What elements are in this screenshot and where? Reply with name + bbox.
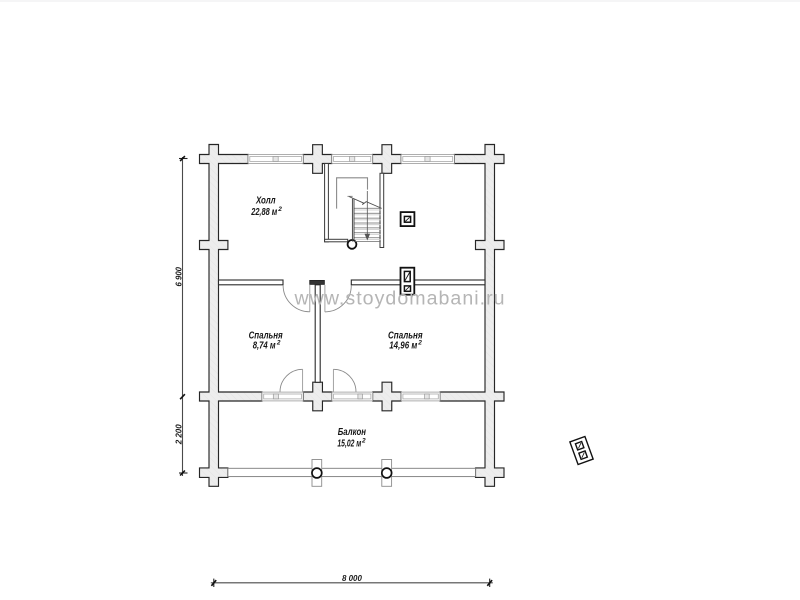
svg-text:Балкон: Балкон [338,427,366,438]
svg-text:2: 2 [361,438,366,445]
svg-text:2: 2 [277,206,282,213]
svg-text:2 200: 2 200 [173,424,183,445]
svg-text:8,74 м: 8,74 м [253,341,276,352]
svg-text:6 900: 6 900 [173,267,183,287]
svg-text:www.stoydomabani.ru: www.stoydomabani.ru [294,288,506,310]
svg-text:22,88 м: 22,88 м [250,207,277,218]
svg-text:15,02 м: 15,02 м [337,438,361,449]
svg-text:14,96 м: 14,96 м [389,341,417,352]
svg-text:8 000: 8 000 [342,573,362,583]
svg-text:Холл: Холл [255,195,276,206]
svg-text:2: 2 [417,340,422,347]
svg-text:2: 2 [276,340,281,347]
